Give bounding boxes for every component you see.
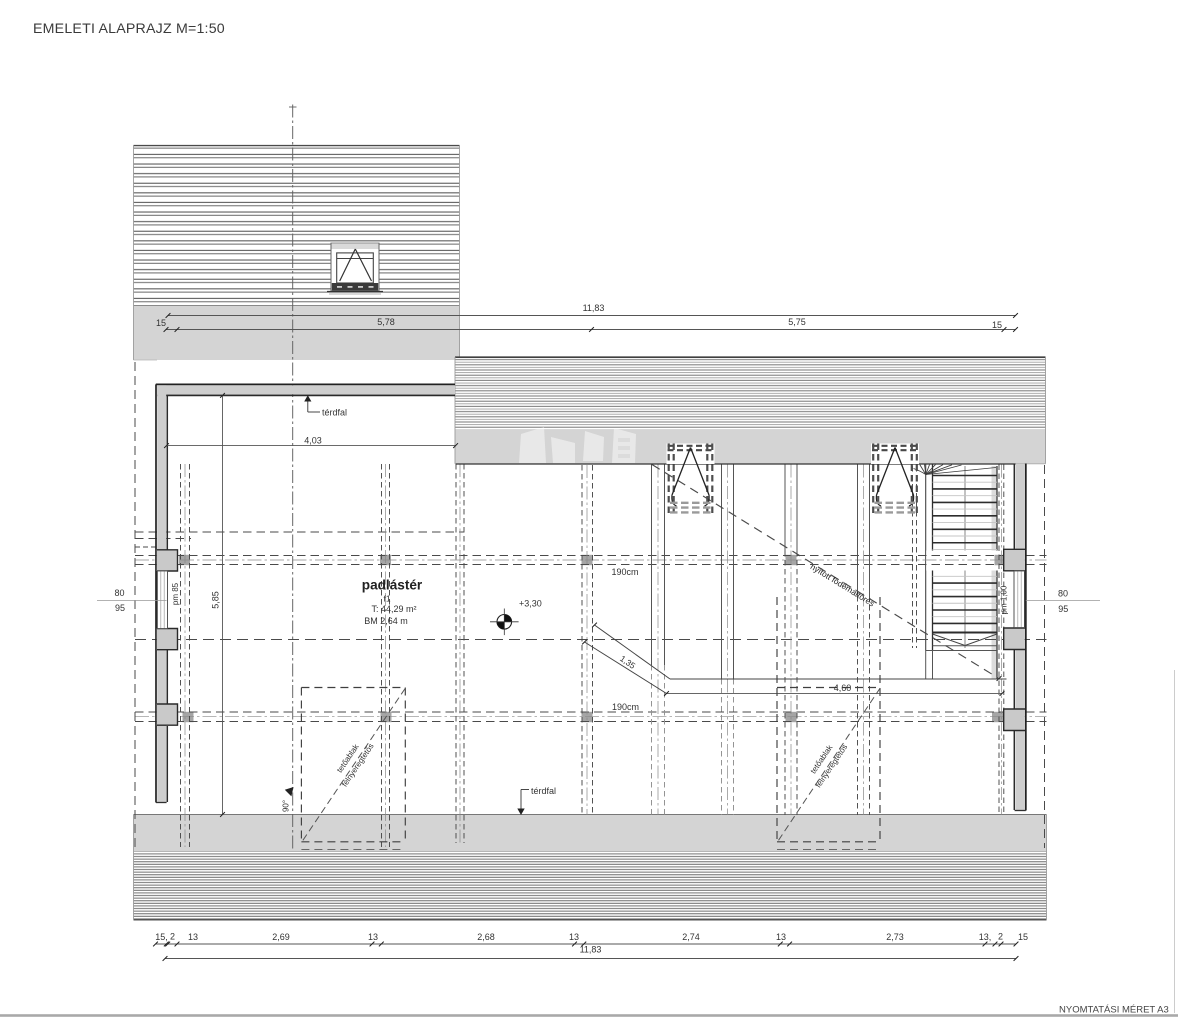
svg-text:190cm: 190cm [612,702,639,712]
svg-text:+3,30: +3,30 [519,599,542,609]
svg-text:térdfal: térdfal [322,408,347,418]
svg-text:pm 1,00: pm 1,00 [1000,585,1009,614]
svg-text:2,69: 2,69 [272,932,290,942]
svg-text:13: 13 [776,932,786,942]
svg-text:13: 13 [368,932,378,942]
svg-text:80: 80 [114,588,124,598]
svg-text:11,83: 11,83 [583,303,605,313]
svg-text:13: 13 [569,932,579,942]
svg-text:pm 85: pm 85 [171,582,180,605]
svg-text:95: 95 [115,603,125,613]
svg-text:13: 13 [188,932,198,942]
svg-text:2,68: 2,68 [477,932,495,942]
svg-text:5,85: 5,85 [211,591,221,609]
svg-text:190cm: 190cm [612,567,639,577]
svg-text:5,75: 5,75 [788,317,806,327]
svg-text:13,: 13, [979,932,992,942]
svg-text:11,83: 11,83 [580,945,602,955]
svg-text:15: 15 [1018,932,1028,942]
svg-text:2: 2 [998,932,1003,942]
svg-text:2: 2 [170,932,175,942]
svg-text:2,73: 2,73 [886,932,904,942]
svg-text:4,60: 4,60 [834,683,852,693]
svg-text:padlástér: padlástér [362,578,423,593]
svg-text:térdfal: térdfal [531,786,556,796]
svg-text:NYOMTATÁSI MÉRET A3: NYOMTATÁSI MÉRET A3 [1059,1005,1169,1016]
svg-text:BM 2,64 m: BM 2,64 m [364,616,408,626]
svg-text:4,03: 4,03 [304,436,322,446]
svg-text:95: 95 [1058,604,1068,614]
svg-text:T: 44,29 m²: T: 44,29 m² [371,604,416,614]
svg-text:90°: 90° [282,800,291,812]
svg-text:15: 15 [156,318,166,328]
svg-text:2,74: 2,74 [682,932,700,942]
svg-text:15: 15 [992,320,1002,330]
svg-text:EMELETI ALAPRAJZ M=1:50: EMELETI ALAPRAJZ M=1:50 [33,21,225,37]
svg-text:15,: 15, [155,932,168,942]
svg-text:f1: f1 [383,594,390,604]
svg-text:80: 80 [1058,589,1068,599]
svg-text:5,78: 5,78 [377,317,395,327]
